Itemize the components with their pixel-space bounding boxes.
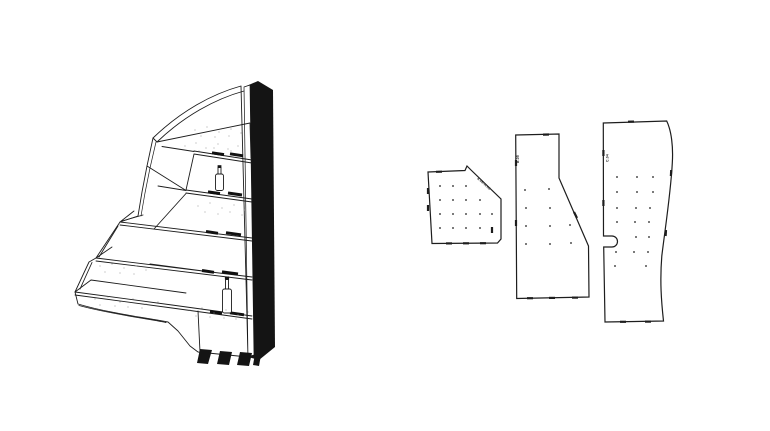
flat-panel-patterns: 6.06-A.06B.05C.04: [428, 121, 673, 322]
cut-panel-panel-b: B.05: [516, 134, 589, 299]
panel-outline: [428, 166, 501, 244]
cut-panel-panel-a: 6.06-A.06: [428, 166, 501, 244]
shelf-assembly-3d-view: [75, 81, 275, 366]
drawing-sheet: 6.06-A.06B.05C.04: [0, 0, 770, 431]
assembly-silhouette: [75, 86, 248, 357]
part-label: C.04: [606, 154, 610, 162]
cut-panel-panel-c: C.04: [603, 121, 672, 322]
panel-outline: [603, 121, 672, 322]
panel-outline: [516, 134, 589, 299]
part-label: B.05: [516, 155, 520, 163]
